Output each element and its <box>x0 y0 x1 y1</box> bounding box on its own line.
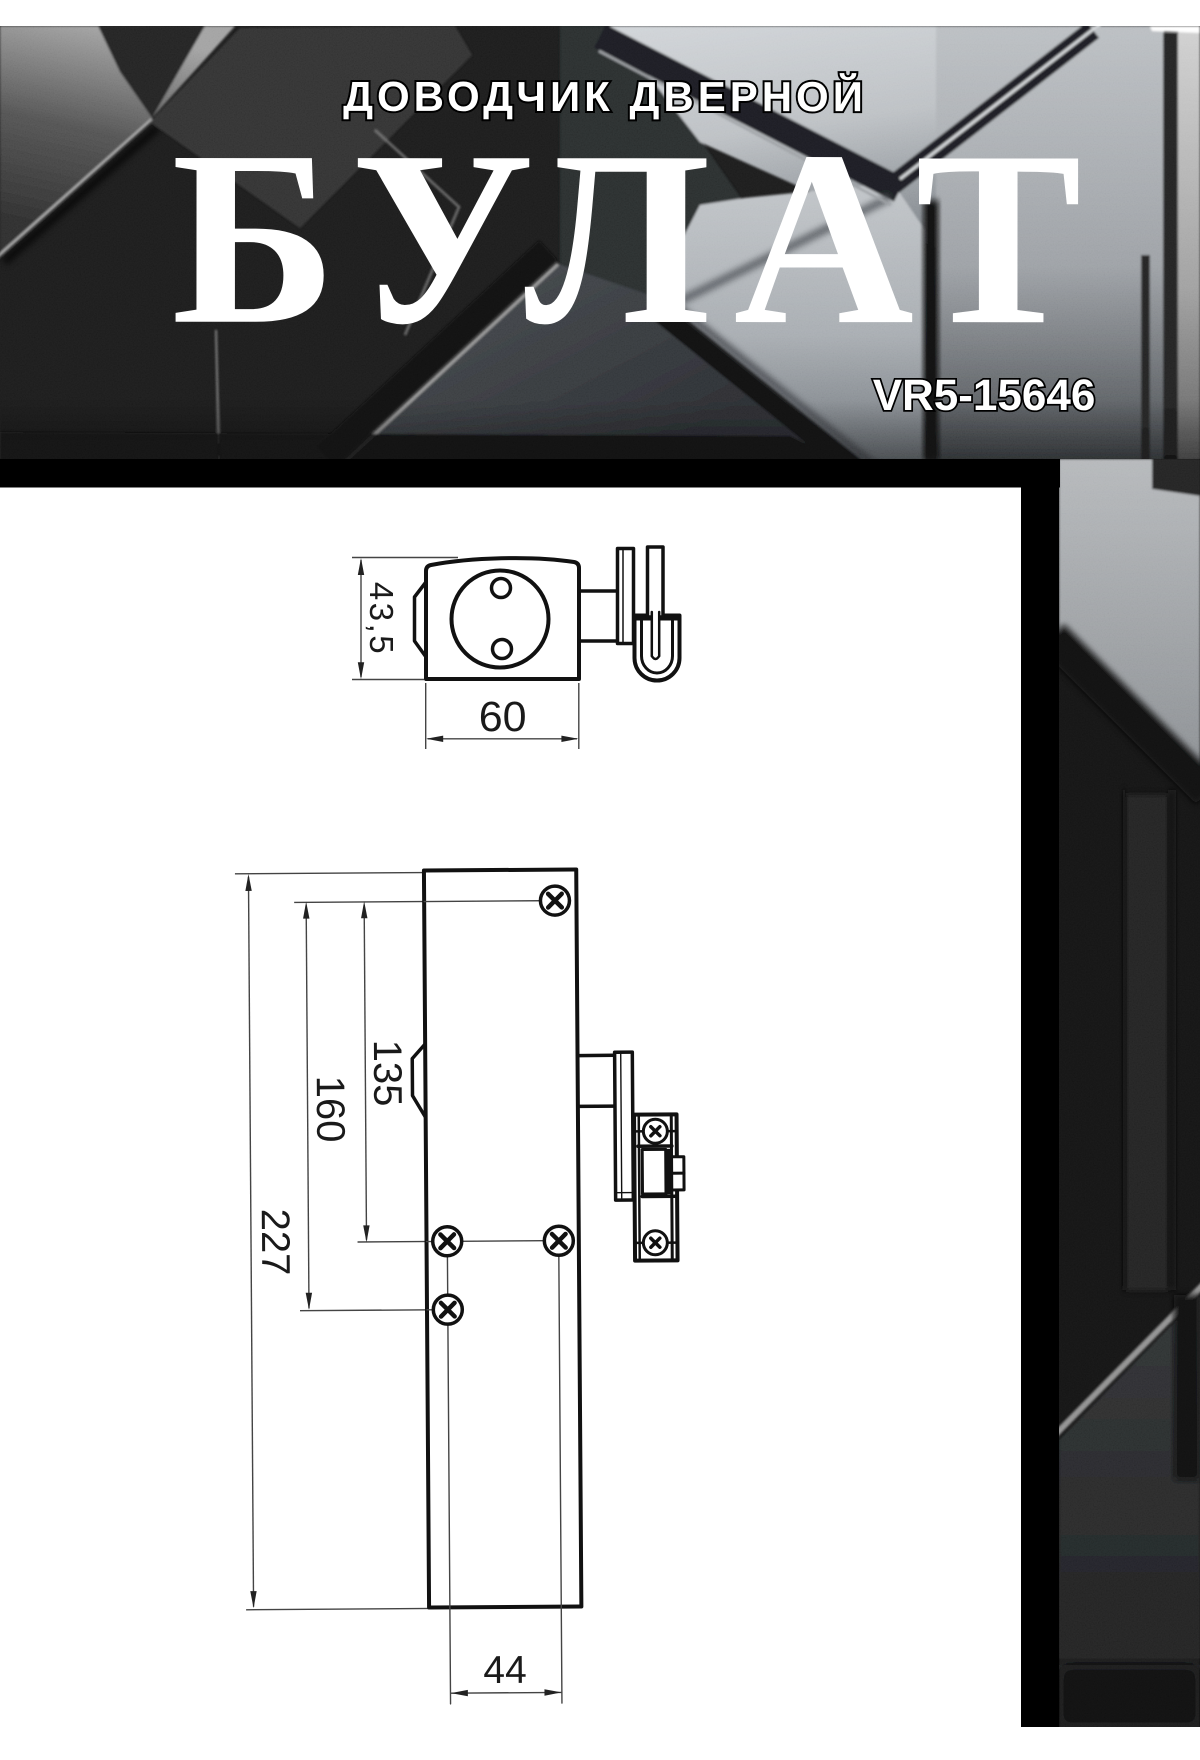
svg-text:60: 60 <box>479 693 527 741</box>
svg-text:135: 135 <box>365 1039 409 1106</box>
svg-text:VR5-15646: VR5-15646 <box>873 371 1096 420</box>
svg-text:227: 227 <box>253 1209 297 1276</box>
svg-text:44: 44 <box>483 1649 527 1692</box>
svg-text:160: 160 <box>308 1075 352 1142</box>
svg-text:БУЛАТ: БУЛАТ <box>171 100 1105 377</box>
svg-text:43,5: 43,5 <box>363 582 400 656</box>
